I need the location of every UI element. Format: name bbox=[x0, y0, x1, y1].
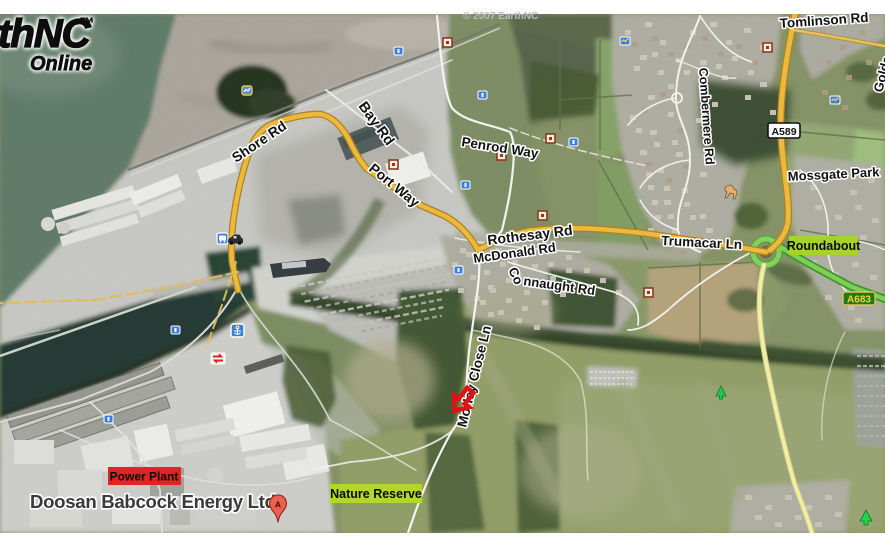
svg-text:Online: Online bbox=[30, 53, 92, 75]
svg-text:A683: A683 bbox=[847, 295, 871, 306]
svg-text:A589: A589 bbox=[771, 126, 796, 138]
svg-text:Power Plant: Power Plant bbox=[110, 470, 179, 484]
svg-text:Roundabout: Roundabout bbox=[787, 239, 861, 253]
svg-text:© 2007 EarthNC: © 2007 EarthNC bbox=[463, 11, 538, 22]
svg-text:™: ™ bbox=[79, 15, 94, 32]
svg-text:thNC: thNC bbox=[0, 12, 92, 56]
svg-text:Nature Reserve: Nature Reserve bbox=[330, 487, 422, 501]
svg-text:A: A bbox=[275, 500, 281, 510]
svg-text:Doosan Babcock Energy Ltd: Doosan Babcock Energy Ltd bbox=[30, 491, 276, 512]
